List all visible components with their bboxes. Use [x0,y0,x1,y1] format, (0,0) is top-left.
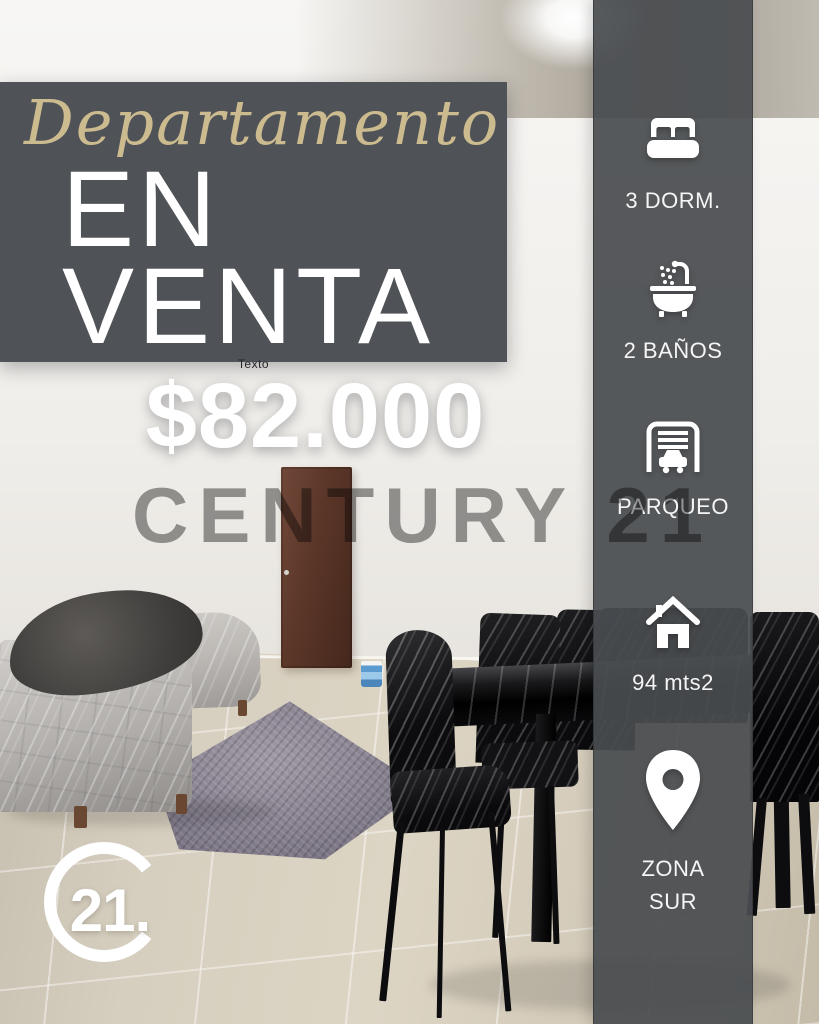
door-handle-icon [284,570,289,575]
dining-chair [750,612,819,802]
house-icon [641,588,705,650]
title-line1: EN [62,160,434,257]
feature-location: ZONA SUR [594,748,752,918]
feature-label-line1: ZONA [641,852,704,885]
bath-icon [641,256,705,318]
title-main: EN VENTA [62,160,434,354]
bed-icon [641,116,705,168]
price-text: $82.000 [58,364,573,469]
sofa-leg [74,806,87,828]
feature-label: 94 mts2 [632,666,714,699]
feature-label: ZONA SUR [641,852,704,918]
title-line2: VENTA [62,257,434,354]
century21-logo: 21. [36,834,172,976]
feature-area: 94 mts2 [594,588,752,699]
garage-icon [639,410,707,474]
feature-label-line2: SUR [641,885,704,918]
sofa-leg [238,700,247,716]
century21-watermark: CENTURY 21 [132,470,713,561]
paint-bucket [361,661,382,687]
location-pin-icon [641,748,705,836]
logo-number: 21. [36,876,172,945]
real-estate-flyer: Departamento EN VENTA Texto $82.000 3 DO… [0,0,819,1024]
title-panel: Departamento EN VENTA [0,82,507,362]
feature-label: 3 DORM. [625,184,720,217]
sofa-leg [176,794,187,814]
feature-bathrooms: 2 BAÑOS [594,256,752,367]
feature-label: 2 BAÑOS [624,334,723,367]
feature-bedrooms: 3 DORM. [594,116,752,217]
